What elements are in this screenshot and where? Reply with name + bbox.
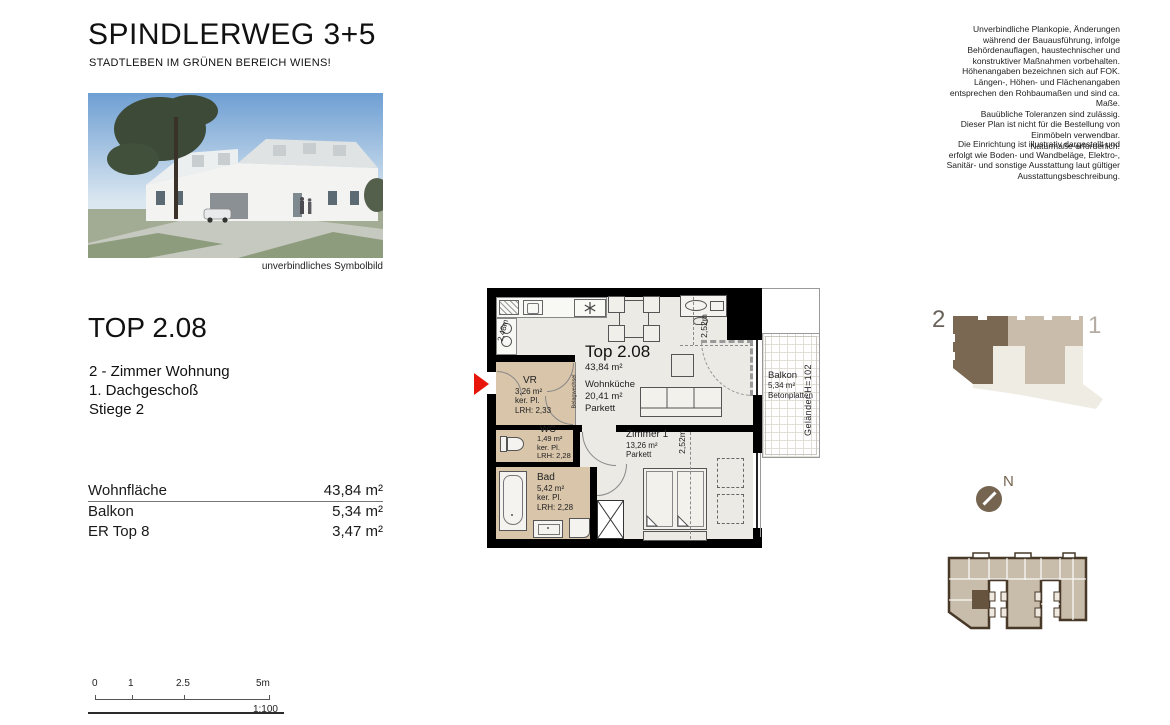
scale-tick	[269, 695, 270, 700]
footer-line	[88, 712, 284, 714]
plan-unit-area: 43,84 m²	[585, 362, 650, 374]
room-name: Zimmer 1	[626, 429, 668, 441]
highlighted-unit	[972, 590, 989, 609]
compass-needle	[982, 491, 996, 505]
area-value: 43,84 m²	[324, 481, 383, 501]
sofa	[640, 387, 722, 417]
area-value: 3,47 m²	[332, 522, 383, 542]
north-compass-icon	[976, 486, 1002, 512]
chair	[608, 296, 625, 313]
area-label: Balkon	[88, 503, 134, 520]
building-key-diagram	[925, 296, 1120, 421]
toilet	[500, 436, 526, 452]
dimension-line	[680, 345, 753, 346]
room-name: VR	[523, 375, 551, 387]
zimmer1-label: Zimmer 1 13,26 m² Parkett	[626, 429, 668, 460]
dimension-label: 2,52m	[677, 422, 687, 462]
unit-info: 2 - Zimmer Wohnung 1. Dachgeschoß Stiege…	[89, 362, 230, 419]
chair	[608, 325, 625, 342]
glazing-line	[756, 453, 758, 528]
building-photo	[88, 93, 383, 258]
room-floor: Parkett	[585, 403, 650, 415]
photo-caption: unverbindliches Symbolbild	[88, 261, 383, 272]
building-outline-above-balcony	[762, 288, 820, 333]
washbasin	[533, 520, 563, 538]
chair	[643, 296, 660, 313]
site-key-plan	[945, 548, 1090, 648]
room-area: 5,42 m²	[537, 484, 573, 494]
building-outline-below-balcony	[760, 458, 761, 537]
room-name: Wohnküche	[585, 379, 650, 391]
dimension-line	[690, 432, 691, 539]
unit-floor: 1. Dachgeschoß	[89, 381, 230, 400]
floor-plan: Top 2.08 43,84 m² Wohnküche 20,41 m² Par…	[487, 288, 833, 548]
chair	[643, 325, 660, 342]
building-rendering-illustration	[88, 93, 383, 258]
page-subtitle: STADTLEBEN IM GRÜNEN BEREICH WIENS!	[89, 57, 331, 69]
area-label: Wohnfläche	[88, 482, 167, 499]
shaft	[597, 500, 624, 539]
vr-label: VR 3,26 m² ker. Pl. LRH: 2,33	[515, 375, 551, 415]
kitchen-counter	[496, 297, 607, 318]
room-lrh: LRH: 2,28	[537, 452, 571, 461]
disclaimer-note-1: Unverbindliche Plankopie, Änderungen wäh…	[940, 24, 1120, 151]
glazing-line	[756, 340, 758, 395]
areas-table: Wohnfläche 43,84 m² Balkon 5,34 m² ER To…	[88, 481, 383, 542]
table-row: Wohnfläche 43,84 m²	[88, 481, 383, 502]
room-name: Bad	[537, 472, 573, 484]
room-lrh: LRH: 2,28	[537, 503, 573, 513]
unit-title: TOP 2.08	[88, 312, 207, 344]
zimmer-door-opening	[582, 425, 616, 432]
side-table	[671, 354, 694, 377]
kitchen-sink-icon	[523, 300, 543, 315]
dimension-label: 2,52m	[699, 306, 709, 346]
unit-stair: Stiege 2	[89, 400, 230, 419]
room-area: 3,26 m²	[515, 387, 551, 397]
scale-tick	[95, 695, 96, 700]
scale-tick	[132, 695, 133, 700]
wardrobe	[717, 494, 744, 524]
disclaimer-note-2: Die Einrichtung ist illustrativ dargeste…	[940, 139, 1120, 181]
gelaender-label: Geländer H=102	[803, 345, 815, 455]
scale-tick-label: 2.5	[176, 678, 190, 689]
washing-machine	[569, 518, 590, 538]
entrance-arrow-icon	[474, 373, 489, 395]
north-label: N	[1003, 473, 1014, 490]
stove-icon	[574, 299, 606, 317]
scale-tick-label: 5m	[256, 678, 270, 689]
table-row: ER Top 8 3,47 m²	[88, 522, 383, 542]
area-value: 5,34 m²	[332, 502, 383, 522]
double-bed	[643, 468, 707, 542]
area-label: ER Top 8	[88, 523, 149, 540]
room-area: 20,41 m²	[585, 391, 650, 403]
dimension-line	[693, 297, 694, 345]
wall	[496, 355, 575, 362]
wohnkueche-label: Top 2.08 43,84 m² Wohnküche 20,41 m² Par…	[585, 342, 650, 415]
scale-tick-label: 1	[128, 678, 134, 689]
wall	[590, 467, 597, 539]
room-floor: ker. Pl.	[537, 493, 573, 503]
bathtub	[499, 471, 527, 531]
bad-label: Bad 5,42 m² ker. Pl. LRH: 2,28	[537, 472, 573, 512]
room-lrh: LRH: 2,33	[515, 406, 551, 416]
belagwechsel-label: Belagwechsel	[572, 366, 579, 418]
wall	[727, 297, 753, 340]
room-floor: ker. Pl.	[515, 396, 551, 406]
page-title: SPINDLERWEG 3+5	[88, 18, 376, 52]
wardrobe	[717, 458, 744, 488]
room-floor: Parkett	[626, 450, 668, 460]
scale-tick-label: 0	[92, 678, 98, 689]
plan-unit-label: Top 2.08	[585, 342, 650, 362]
plan-sheet: { "header": { "title": "SPINDLERWEG 3+5"…	[0, 0, 1170, 725]
scale-bar-line	[95, 699, 270, 700]
wc-label: WC 1,49 m² ker. Pl. LRH: 2,28	[537, 424, 571, 461]
scale-tick	[184, 695, 185, 700]
table-row: Balkon 5,34 m²	[88, 502, 383, 522]
unit-type: 2 - Zimmer Wohnung	[89, 362, 230, 381]
room-area: 13,26 m²	[626, 441, 668, 451]
